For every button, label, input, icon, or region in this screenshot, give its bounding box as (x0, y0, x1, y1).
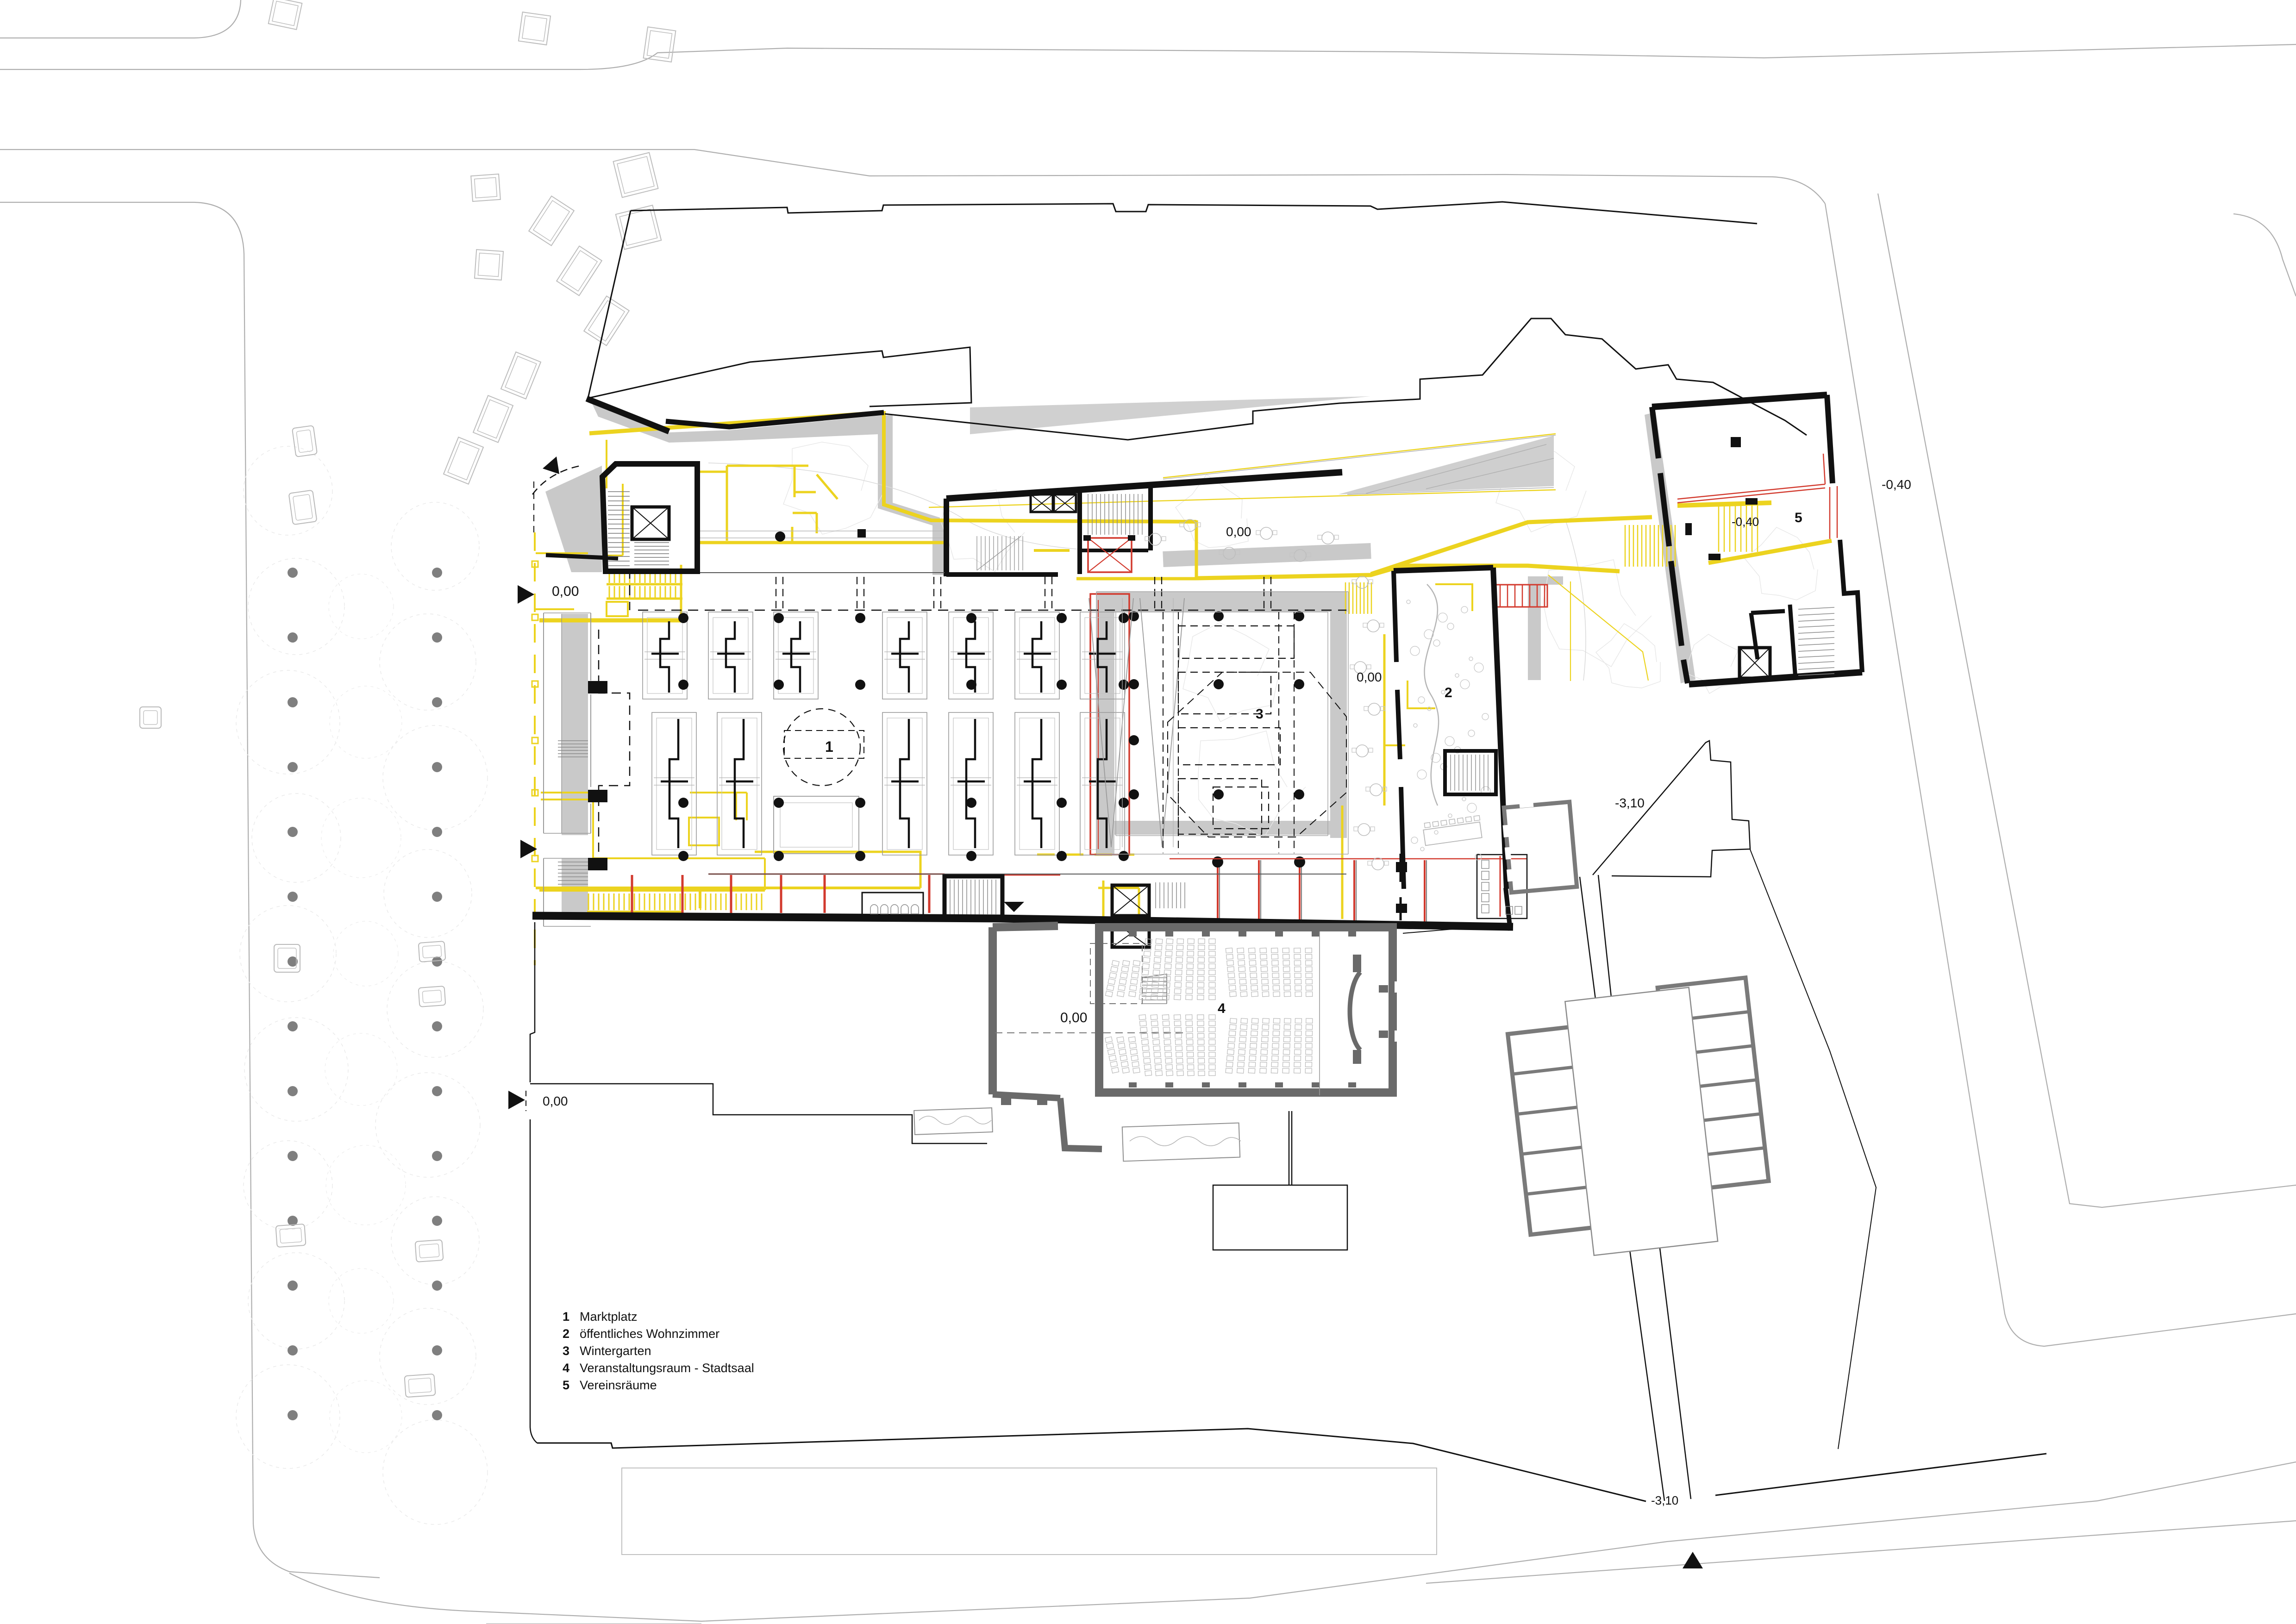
svg-text:0,00: 0,00 (1060, 1010, 1087, 1025)
svg-text:Marktplatz: Marktplatz (580, 1310, 638, 1324)
svg-text:4: 4 (1218, 1001, 1226, 1016)
svg-text:1: 1 (563, 1310, 569, 1324)
svg-text:0,00: 0,00 (543, 1094, 568, 1108)
svg-text:4: 4 (563, 1361, 569, 1375)
svg-text:-0,40: -0,40 (1732, 515, 1759, 529)
svg-text:5: 5 (563, 1378, 569, 1392)
svg-text:0,00: 0,00 (552, 584, 579, 599)
svg-text:Veranstaltungsraum - Stadtsaal: Veranstaltungsraum - Stadtsaal (580, 1361, 754, 1375)
svg-text:0,00: 0,00 (1226, 525, 1251, 539)
svg-text:-3,10: -3,10 (1651, 1493, 1678, 1507)
svg-text:Wintergarten: Wintergarten (580, 1344, 651, 1358)
svg-text:Vereinsräume: Vereinsräume (580, 1378, 657, 1392)
svg-text:-0,40: -0,40 (1882, 477, 1911, 492)
svg-text:-3,10: -3,10 (1615, 796, 1645, 810)
svg-text:0,00: 0,00 (1357, 670, 1382, 684)
svg-text:3: 3 (1256, 706, 1264, 722)
svg-text:öffentliches Wohnzimmer: öffentliches Wohnzimmer (580, 1327, 719, 1341)
svg-text:2: 2 (1445, 685, 1452, 700)
svg-text:2: 2 (563, 1327, 569, 1341)
svg-text:3: 3 (563, 1344, 569, 1358)
svg-text:5: 5 (1795, 510, 1802, 525)
svg-text:1: 1 (825, 738, 833, 755)
